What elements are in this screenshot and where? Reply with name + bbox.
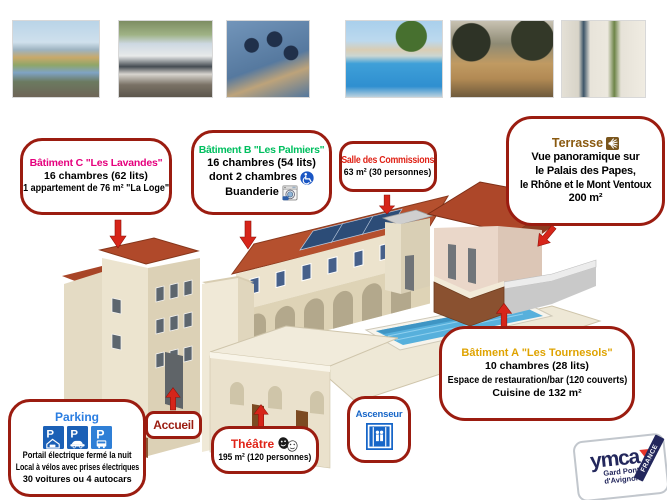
callout-title: Bâtiment C "Les Lavandes" xyxy=(30,157,163,170)
callout-line: 30 voitures ou 4 autocars xyxy=(23,474,132,486)
line-text: Buanderie xyxy=(225,186,279,200)
parking-signs-row: P P P xyxy=(43,426,112,449)
building-c-roof xyxy=(100,238,198,264)
callout-line: 63 m² (30 personnes) xyxy=(344,167,431,179)
elevator-icon xyxy=(366,423,393,450)
sun-terrace-icon xyxy=(606,137,619,150)
parking-bus-icon: P xyxy=(91,426,112,449)
wheelchair-icon xyxy=(300,171,314,185)
callout-line: le Rhône et le Mont Ventoux xyxy=(520,179,651,193)
callout-batiment-b: Bâtiment B "Les Palmiers" 16 chambres (5… xyxy=(191,130,332,215)
callout-title: Terrasse xyxy=(552,136,603,151)
callout-line: Vue panoramique sur xyxy=(531,151,639,165)
svg-text:P: P xyxy=(70,428,78,440)
callout-line: 195 m² (120 personnes) xyxy=(219,452,312,464)
infographic-canvas: Bâtiment C "Les Lavandes" 16 chambres (6… xyxy=(0,0,667,500)
callout-title: Bâtiment B "Les Palmiers" xyxy=(199,144,325,157)
line-text: dont 2 chambres xyxy=(209,171,297,185)
callout-batiment-c: Bâtiment C "Les Lavandes" 16 chambres (6… xyxy=(20,138,172,215)
callout-line: 16 chambres (54 lits) xyxy=(207,157,316,171)
parking-garage-icon: P xyxy=(43,426,64,449)
callout-title: Parking xyxy=(55,410,99,424)
callout-line: dont 2 chambres xyxy=(209,171,314,185)
theatre-masks-icon xyxy=(277,437,299,452)
callout-line: Cuisine de 132 m² xyxy=(492,387,581,400)
callout-line: 16 chambres (62 lits) xyxy=(44,170,148,183)
callout-batiment-a: Bâtiment A "Les Tournesols" 10 chambres … xyxy=(439,326,635,421)
svg-text:P: P xyxy=(96,427,104,441)
connector-door xyxy=(405,255,414,291)
parking-car-icon: P xyxy=(67,426,88,449)
callout-accueil: Accueil xyxy=(145,411,202,439)
callout-line: Espace de restauration/bar (120 couverts… xyxy=(447,374,627,387)
callout-title: Salle des Commissions xyxy=(342,155,435,167)
callout-terrasse: Terrasse Vue panoramique sur le Palais d… xyxy=(506,116,665,226)
entrance-door xyxy=(165,352,183,409)
callout-line: Portail électrique fermé la nuit xyxy=(23,450,132,462)
callout-ascenseur: Ascenseur xyxy=(347,396,411,463)
callout-title-row: Théâtre xyxy=(231,437,299,452)
callout-title: Ascenseur xyxy=(356,409,403,420)
callout-salle-commissions: Salle des Commissions 63 m² (30 personne… xyxy=(339,141,437,192)
callout-line: 200 m² xyxy=(569,192,603,206)
callout-line: 1 appartement de 76 m² "La Loge" xyxy=(23,183,169,196)
callout-line: Local à vélos avec prises électriques xyxy=(15,462,138,474)
callout-title: Accueil xyxy=(153,418,194,432)
callout-parking: Parking P P P xyxy=(8,399,146,497)
callout-line: Buanderie xyxy=(225,185,298,201)
callout-line: 10 chambres (28 lits) xyxy=(485,360,589,373)
washing-machine-icon xyxy=(282,185,298,201)
callout-theatre: Théâtre 195 m² (120 personnes) xyxy=(211,426,319,474)
callout-title: Théâtre xyxy=(231,437,274,451)
callout-line: le Palais des Papes, xyxy=(535,165,636,179)
callout-title-row: Terrasse xyxy=(552,136,619,151)
callout-title: Bâtiment A "Les Tournesols" xyxy=(461,347,612,360)
svg-text:P: P xyxy=(46,428,54,440)
ymca-logo: ymca Gard Pont d'Avignon FRANCE xyxy=(572,432,667,500)
